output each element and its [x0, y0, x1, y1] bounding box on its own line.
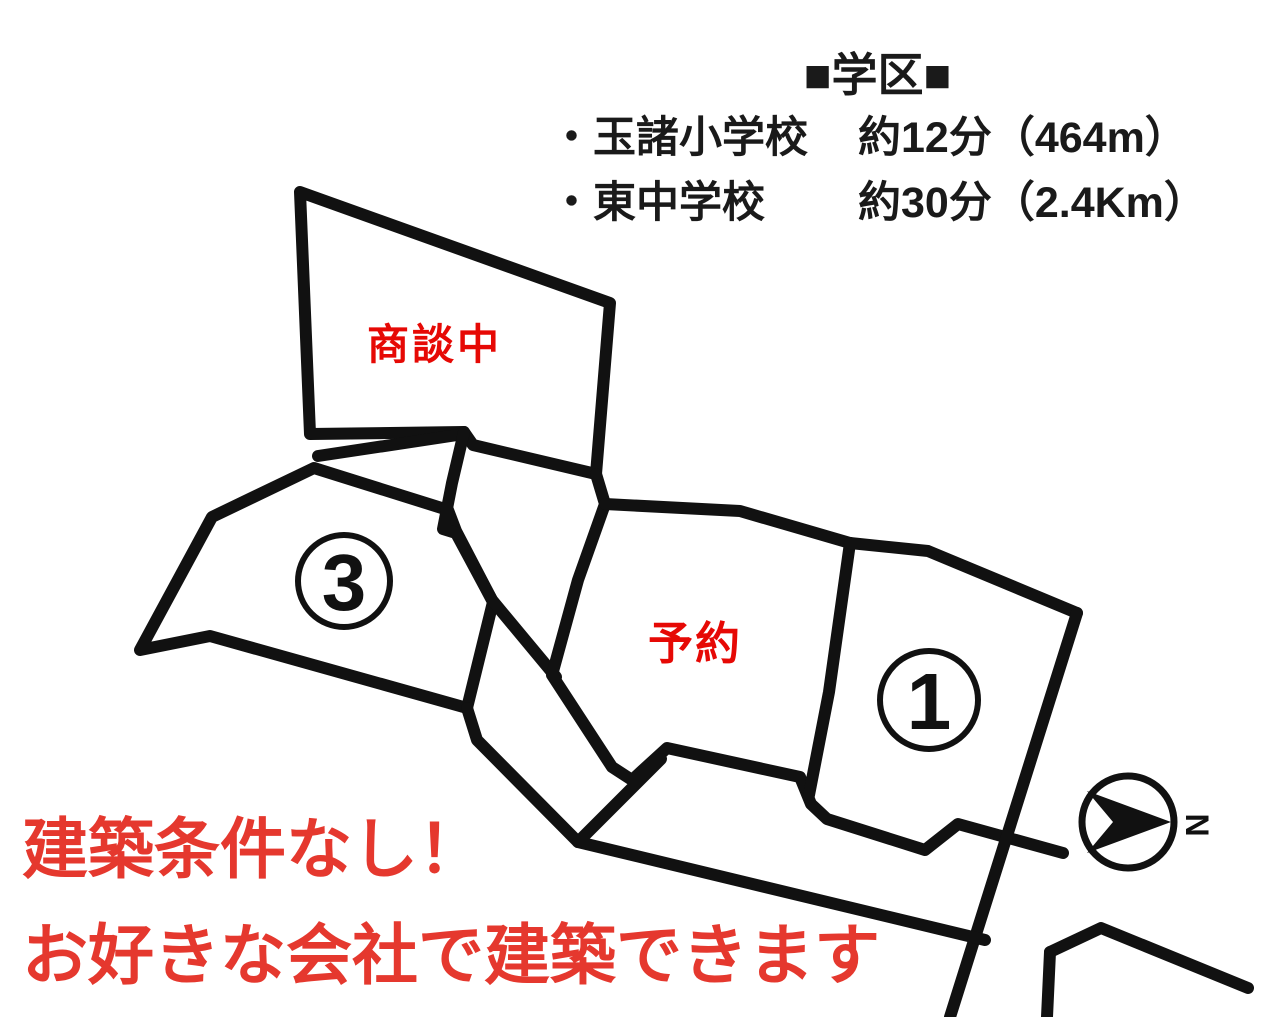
north-compass: N: [1082, 776, 1215, 868]
school-name-juniorhigh: ・東中学校: [550, 182, 858, 225]
lot-1-top-edge: [850, 543, 1077, 613]
status-label-negotiating: 商談中: [367, 311, 502, 372]
plot-3-number: 3: [322, 538, 367, 627]
school-district-title: ■学区■: [550, 50, 1205, 101]
school-item-juniorhigh: ・東中学校 約30分（2.4Km）: [550, 182, 1205, 225]
school-district-info: ■学区■ ・玉諸小学校 約12分（464m） ・東中学校 約30分（2.4Km）: [550, 50, 1205, 247]
lot-reserved-top-edge: [605, 504, 850, 543]
school-item-elementary: ・玉諸小学校 約12分（464m）: [550, 117, 1205, 160]
bottom-right-parcel-line: [1050, 928, 1248, 988]
bottom-right-vertical-line: [1047, 952, 1050, 1017]
wedge-plot-left-edge: [443, 432, 556, 677]
promo-banner-line2: お好きな会社で建築できます: [22, 922, 880, 988]
school-distance-juniorhigh: 約30分（2.4Km）: [858, 182, 1207, 225]
compass-north-label: N: [1179, 813, 1215, 836]
land-plot-map-page: 3 1 N ■学区■ ・玉諸小学校 約12分（464m） ・東中学校 約30分（…: [0, 0, 1280, 1017]
lot-divider: [809, 543, 850, 795]
school-distance-elementary: 約12分（464m）: [858, 117, 1188, 160]
lot-3-outline: [140, 468, 493, 708]
plot-1-number: 1: [907, 657, 952, 746]
promo-banner-line1: 建築条件なし！: [22, 816, 880, 882]
promo-banner: 建築条件なし！ お好きな会社で建築できます: [22, 816, 880, 988]
school-name-elementary: ・玉諸小学校: [550, 117, 858, 160]
status-label-reserved: 予約: [648, 607, 742, 672]
